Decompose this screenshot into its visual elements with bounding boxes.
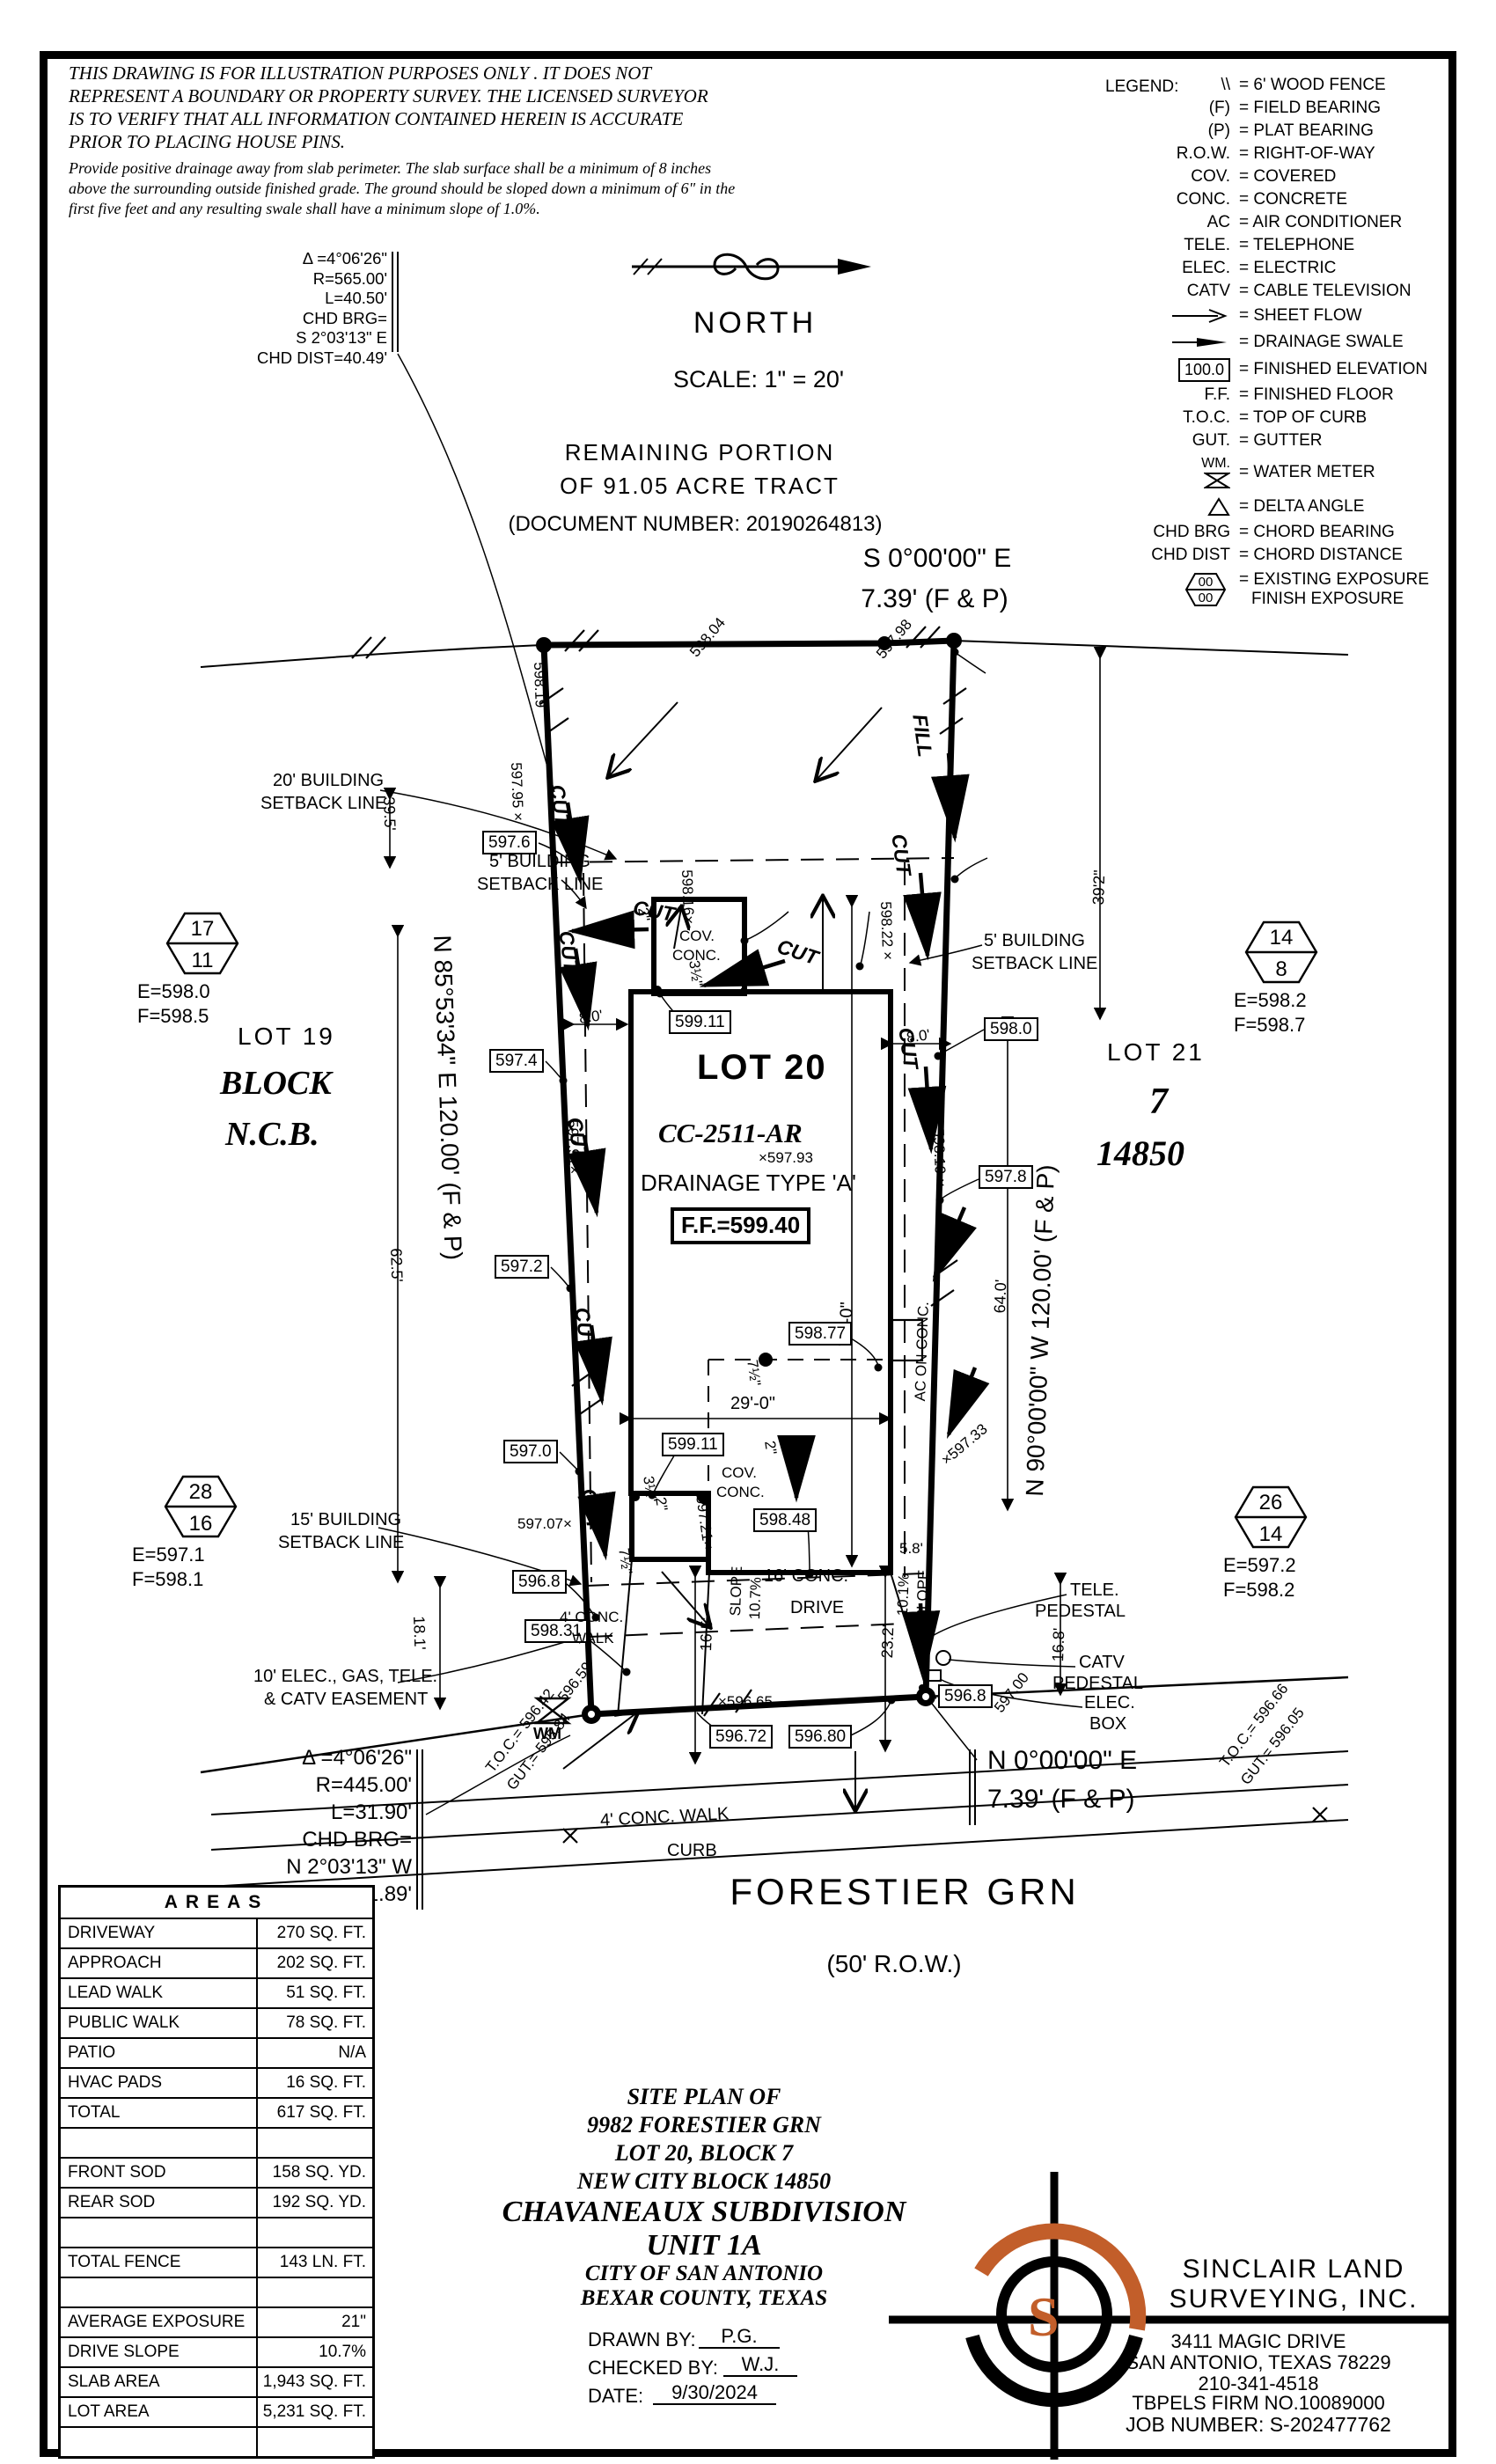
table-row: PUBLIC WALK78 SQ. FT.	[61, 2009, 372, 2039]
elev-box: 598.0	[984, 1017, 1038, 1041]
street-row: (50' R.O.W.)	[826, 1950, 961, 1978]
legend-row: (P)= PLAT BEARING	[1107, 120, 1459, 143]
catv-pedestal-icon	[936, 1651, 950, 1665]
setback-5-right-label: 5' BUILDING	[984, 931, 1085, 951]
site-plan-sheet: THIS DRAWING IS FOR ILLUSTRATION PURPOSE…	[0, 0, 1496, 2464]
elev-box: 596.8	[512, 1570, 567, 1594]
grade: ×597.93	[759, 1149, 813, 1167]
legend-row: F.F.= FINISHED FLOOR	[1107, 384, 1459, 407]
dim-39-2: 39'2"	[1089, 869, 1109, 906]
legend-row: CHD BRG= CHORD BEARING	[1107, 521, 1459, 544]
grade: 597.07×	[517, 1515, 572, 1533]
table-row: FRONT SOD158 SQ. YD.	[61, 2159, 372, 2189]
table-row: TOTAL FENCE143 LN. FT.	[61, 2248, 372, 2278]
legend: \\= 6' WOOD FENCE (F)= FIELD BEARING (P)…	[1107, 74, 1459, 612]
areas-table: AREAS DRIVEWAY270 SQ. FT. APPROACH202 SQ…	[58, 1885, 375, 2459]
conc-drive-label: DRIVE	[790, 1598, 844, 1618]
easement-label: & CATV EASEMENT	[264, 1690, 428, 1710]
water-meter-legend-icon	[1204, 472, 1230, 489]
logo-s: S	[1028, 2284, 1060, 2350]
catv-pedestal-label: PEDESTAL	[1052, 1674, 1143, 1694]
city-label: CITY OF SAN ANTONIO	[585, 2262, 823, 2287]
legend-row: = SHEET FLOW	[1107, 303, 1459, 329]
hex-lot: 26	[1253, 1491, 1288, 1515]
table-row: DRIVE SLOPE10.7%	[61, 2338, 372, 2368]
dim-2in: 2"	[652, 1496, 671, 1512]
ncb-label: N.C.B.	[225, 1116, 319, 1155]
hex-elev: E=598.2	[1234, 989, 1307, 1011]
lot19-label: LOT 19	[238, 1023, 335, 1051]
setback-20-label: 20' BUILDING	[273, 771, 384, 791]
drainage-swale-icon	[1107, 335, 1239, 349]
tract-line1: REMAINING PORTION	[565, 440, 835, 466]
legend-row: AC= AIR CONDITIONER	[1107, 211, 1459, 234]
slope-label: SLOPE	[913, 1569, 933, 1619]
table-row: LEAD WALK51 SQ. FT.	[61, 1979, 372, 2009]
table-row: LOT AREA5,231 SQ. FT.	[61, 2398, 372, 2428]
title-line: NEW CITY BLOCK 14850	[577, 2168, 831, 2195]
elev-box: 597.8	[979, 1165, 1033, 1189]
firm-number: TBPELS FIRM NO.10089000	[1132, 2392, 1384, 2414]
firm-address: SAN ANTONIO, TEXAS 78229	[1126, 2351, 1390, 2373]
grade: 598.16×	[678, 869, 697, 925]
tele-pedestal-label: TELE.	[1070, 1580, 1119, 1601]
cov-conc-label: COV.	[722, 1464, 757, 1482]
setback-15-label: SETBACK LINE	[278, 1533, 404, 1553]
bearing-top-1: S 0°00'00" E	[863, 544, 1012, 575]
legend-row: 100.0 = FINISHED ELEVATION	[1107, 356, 1459, 384]
block-label: BLOCK	[220, 1065, 332, 1104]
disclaimer-note: Provide positive drainage away from slab…	[69, 158, 746, 219]
table-row: PATION/A	[61, 2039, 372, 2069]
grade: 598.19 ×	[929, 1128, 949, 1187]
grade: 597.95 ×	[507, 762, 526, 821]
conc-walk-label: 4' CONC.	[560, 1609, 623, 1626]
slope-value: 10.1%	[894, 1573, 913, 1617]
elec-box-label: BOX	[1089, 1714, 1126, 1734]
dim-62-5: 62.5'	[386, 1248, 406, 1282]
elev-box: 596.8	[938, 1684, 993, 1708]
legend-row: (F)= FIELD BEARING	[1107, 97, 1459, 120]
elev-box: 596.80	[788, 1725, 852, 1749]
dim-2in: 2"	[634, 906, 654, 922]
conc-drive-label: 16' CONC.	[764, 1566, 848, 1587]
elev-box: 598.77	[788, 1322, 852, 1346]
lot20-label: LOT 20	[697, 1047, 827, 1088]
elev-box: 599.11	[669, 1010, 731, 1034]
curve-data-top: Δ =4°06'26"R=565.00' L=40.50'CHD BRG= S …	[145, 249, 387, 368]
elev-box: 597.4	[489, 1049, 544, 1073]
grade: ×596.65	[718, 1693, 773, 1711]
dim-18-1: 18.1'	[409, 1616, 429, 1650]
legend-row: TELE.= TELEPHONE	[1107, 234, 1459, 257]
setback-5-right-label: SETBACK LINE	[972, 954, 1097, 974]
legend-row: T.O.C.= TOP OF CURB	[1107, 407, 1459, 429]
hex-elev: F=598.5	[137, 1005, 209, 1027]
table-row: AVERAGE EXPOSURE21"	[61, 2308, 372, 2338]
bearing-bottom-2: 7.39' (F & P)	[987, 1785, 1134, 1815]
elec-box-label: ELEC.	[1084, 1693, 1135, 1713]
dim-39-5: 39.5'	[379, 796, 399, 831]
bearing-top-2: 7.39' (F & P)	[861, 584, 1008, 615]
subdivision-name: CHAVANEAUX SUBDIVISION	[502, 2195, 906, 2229]
legend-row: CHD DIST= CHORD DISTANCE	[1107, 544, 1459, 567]
lot21-label: LOT 21	[1107, 1038, 1205, 1067]
table-row: SLAB AREA1,943 SQ. FT.	[61, 2368, 372, 2398]
table-row: HVAC PADS16 SQ. FT.	[61, 2069, 372, 2099]
elev-box: 598.48	[753, 1508, 817, 1532]
table-row	[61, 2129, 372, 2159]
legend-row: = DRAINAGE SWALE	[1107, 329, 1459, 356]
legend-row: 00 00 = EXISTING EXPOSURE FINISH EXPOSUR…	[1107, 567, 1459, 612]
legend-row: GUT.= GUTTER	[1107, 429, 1459, 452]
north-arrow-icon	[632, 254, 871, 279]
legend-row: COV.= COVERED	[1107, 165, 1459, 188]
tract-line2: OF 91.05 ACRE TRACT	[560, 473, 840, 500]
finished-floor: F.F.=599.40	[671, 1207, 810, 1244]
hex-elev: F=598.1	[132, 1568, 203, 1590]
grade: 598.19	[530, 662, 548, 708]
date-value: 9/30/2024	[653, 2381, 776, 2405]
areas-title: AREAS	[61, 1888, 372, 1919]
slope-value: 10.7%	[746, 1577, 765, 1620]
title-line: 9982 FORESTIER GRN	[587, 2112, 821, 2138]
table-row	[61, 2278, 372, 2308]
ac-on-conc-label: AC ON CONC.	[912, 1302, 932, 1402]
hex-lot: 8	[1264, 957, 1299, 982]
street-name: FORESTIER GRN	[730, 1871, 1079, 1913]
dim-23-2: 23.2'	[878, 1624, 898, 1659]
unit-label: UNIT 1A	[646, 2228, 761, 2262]
date-label: DATE:	[588, 2385, 643, 2407]
dim-16-5: 16.5'	[697, 1617, 716, 1652]
legend-row: R.O.W.= RIGHT-OF-WAY	[1107, 143, 1459, 165]
setback-5-left-label: 5' BUILDING	[489, 852, 590, 872]
table-row: APPROACH202 SQ. FT.	[61, 1949, 372, 1979]
hex-elev: E=597.1	[132, 1544, 205, 1566]
dim-7half: 7½"	[615, 1547, 635, 1575]
elev-box: 597.2	[495, 1255, 549, 1279]
curve-data-bottom: Δ =4°06'26"R=445.00' L=31.90'CHD BRG= N …	[113, 1744, 412, 1908]
curb-label: CURB	[667, 1841, 717, 1861]
legend-row: ELEC.= ELECTRIC	[1107, 257, 1459, 280]
dim-3half: 3½"	[686, 959, 706, 987]
title-line: LOT 20, BLOCK 7	[615, 2140, 793, 2167]
table-row: TOTAL617 SQ. FT.	[61, 2099, 372, 2129]
disclaimer-caps: THIS DRAWING IS FOR ILLUSTRATION PURPOSE…	[69, 62, 724, 153]
finished-elevation-icon: 100.0	[1178, 358, 1230, 382]
checked-by-label: CHECKED BY:	[588, 2357, 718, 2379]
bearing-bottom-1: N 0°00'00" E	[987, 1746, 1137, 1777]
dim-7half: 7½"	[744, 1359, 764, 1387]
hex-lot: 28	[183, 1480, 218, 1505]
legend-row: WM. = WATER METER	[1107, 452, 1459, 493]
hex-elev: E=597.2	[1223, 1554, 1296, 1576]
setback-15-label: 15' BUILDING	[290, 1510, 401, 1530]
grade: 598.22 ×	[876, 901, 896, 960]
legend-row: \\= 6' WOOD FENCE	[1107, 74, 1459, 97]
cov-conc-label: COV.	[679, 928, 715, 945]
delta-angle-icon	[1107, 497, 1239, 517]
setback-20-label: SETBACK LINE	[260, 794, 386, 814]
setback-5-left-label: SETBACK LINE	[477, 875, 603, 895]
elev-box: 599.11	[662, 1433, 724, 1456]
wood-fence-icon: \\	[1107, 76, 1239, 95]
ncb-number-label: 14850	[1096, 1133, 1184, 1174]
firm-address: 3411 MAGIC DRIVE	[1171, 2330, 1346, 2352]
table-row: REAR SOD192 SQ. YD.	[61, 2189, 372, 2218]
sheet-flow-icon	[1107, 309, 1239, 323]
county-label: BEXAR COUNTY, TEXAS	[581, 2286, 827, 2312]
drawn-by-label: DRAWN BY:	[588, 2328, 696, 2350]
hex-elev: E=598.0	[137, 980, 210, 1002]
hex-lot: 16	[183, 1512, 218, 1536]
hex-elev: F=598.7	[1234, 1014, 1305, 1036]
drawn-by-value: P.G.	[699, 2325, 780, 2349]
table-row: DRIVEWAY270 SQ. FT.	[61, 1919, 372, 1949]
easement-label: 10' ELEC., GAS, TELE.	[253, 1667, 437, 1687]
drainage-type: DRAINAGE TYPE 'A'	[641, 1170, 856, 1197]
svg-text:00: 00	[1199, 590, 1214, 605]
legend-row: CATV= CABLE TELEVISION	[1107, 280, 1459, 303]
dim-16-8: 16.8'	[1049, 1628, 1068, 1662]
dim-29: 29'-0"	[730, 1394, 775, 1414]
tele-pedestal-label: PEDESTAL	[1035, 1602, 1126, 1622]
legend-row: CONC.= CONCRETE	[1107, 188, 1459, 211]
checked-by-value: W.J.	[723, 2353, 797, 2377]
conc-walk-label: WALK	[572, 1630, 614, 1647]
scale-label: SCALE: 1" = 20'	[673, 366, 844, 393]
dim-5-8: 5.8'	[899, 1540, 923, 1558]
north-label: NORTH	[693, 306, 817, 341]
cov-conc-label: CONC.	[716, 1484, 765, 1501]
plan-number: CC-2511-AR	[658, 1118, 803, 1149]
elev-box: 597.6	[482, 831, 537, 854]
legend-row: = DELTA ANGLE	[1107, 493, 1459, 521]
hex-lot: 14	[1253, 1522, 1288, 1547]
firm-name: SINCLAIR LAND	[1183, 2255, 1405, 2285]
dim-8ft: 8.0'	[578, 1007, 604, 1027]
elev-box: 597.0	[503, 1440, 558, 1463]
tract-line3: (DOCUMENT NUMBER: 20190264813)	[508, 512, 882, 537]
dim-64: 64.0'	[991, 1280, 1010, 1314]
block7-label: 7	[1149, 1081, 1168, 1123]
hex-lot: 17	[185, 917, 220, 942]
table-row	[61, 2428, 372, 2456]
dim-2in: 2"	[761, 1440, 781, 1456]
elev-box: 596.72	[709, 1725, 773, 1749]
hex-lot: 14	[1264, 926, 1299, 950]
dim-8ft: 8.0'	[906, 1026, 931, 1046]
firm-name: SURVEYING, INC.	[1170, 2284, 1419, 2315]
catv-pedestal-label: CATV	[1079, 1653, 1125, 1673]
job-number: JOB NUMBER: S-202477762	[1126, 2413, 1391, 2436]
slope-label: SLOPE	[727, 1566, 746, 1616]
title-line: SITE PLAN OF	[627, 2084, 781, 2110]
hex-lot: 11	[185, 949, 220, 973]
svg-text:00: 00	[1199, 575, 1214, 590]
table-row	[61, 2218, 372, 2248]
dim-5-8: 5.8'	[588, 1512, 612, 1529]
hex-elev: F=598.2	[1223, 1579, 1294, 1601]
exposure-hex-icon: 00 00	[1107, 569, 1239, 610]
